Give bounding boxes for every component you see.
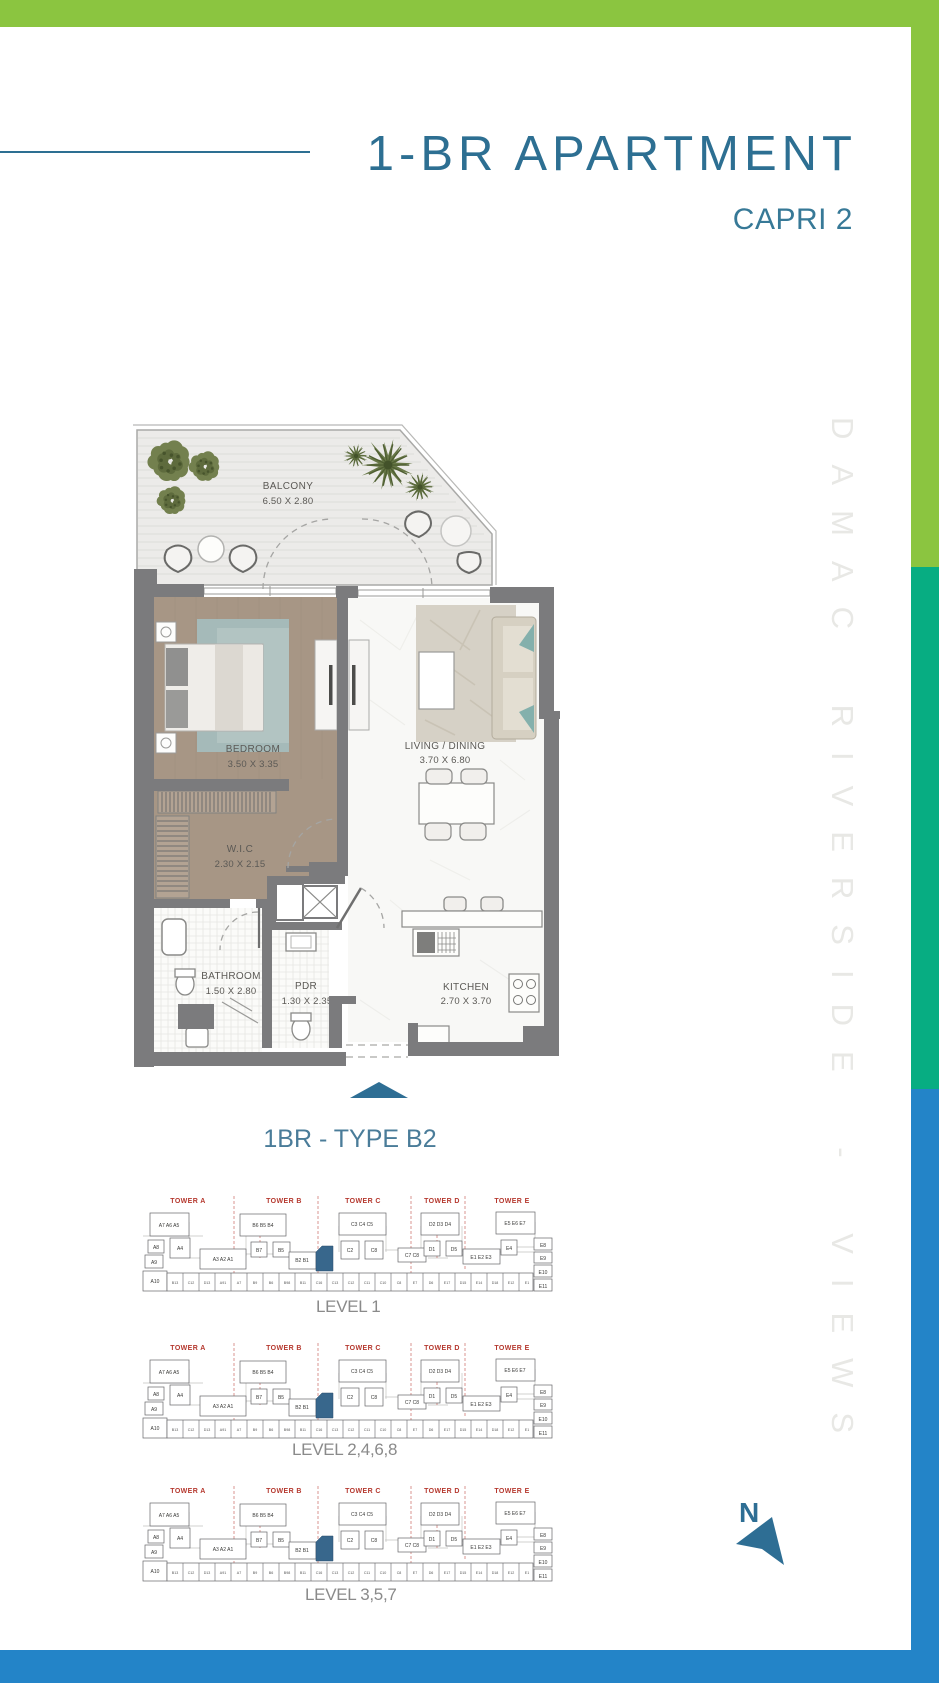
svg-text:1.50 X 2.80: 1.50 X 2.80	[206, 986, 257, 997]
svg-text:BEDROOM: BEDROOM	[226, 744, 280, 755]
svg-text:PDR: PDR	[295, 981, 317, 992]
svg-text:2.30 X 2.15: 2.30 X 2.15	[215, 859, 266, 870]
svg-text:2.70 X 3.70: 2.70 X 3.70	[441, 996, 492, 1007]
svg-text:W.I.C: W.I.C	[227, 844, 253, 855]
svg-text:BATHROOM: BATHROOM	[201, 971, 260, 982]
svg-text:3.70 X 6.80: 3.70 X 6.80	[420, 755, 471, 766]
svg-text:1.30 X 2.35: 1.30 X 2.35	[282, 996, 333, 1007]
svg-text:KITCHEN: KITCHEN	[443, 982, 489, 993]
svg-text:LIVING / DINING: LIVING / DINING	[405, 741, 486, 752]
svg-text:BALCONY: BALCONY	[263, 481, 314, 492]
svg-text:3.50 X 3.35: 3.50 X 3.35	[228, 759, 279, 770]
svg-text:6.50 X 2.80: 6.50 X 2.80	[263, 496, 314, 507]
